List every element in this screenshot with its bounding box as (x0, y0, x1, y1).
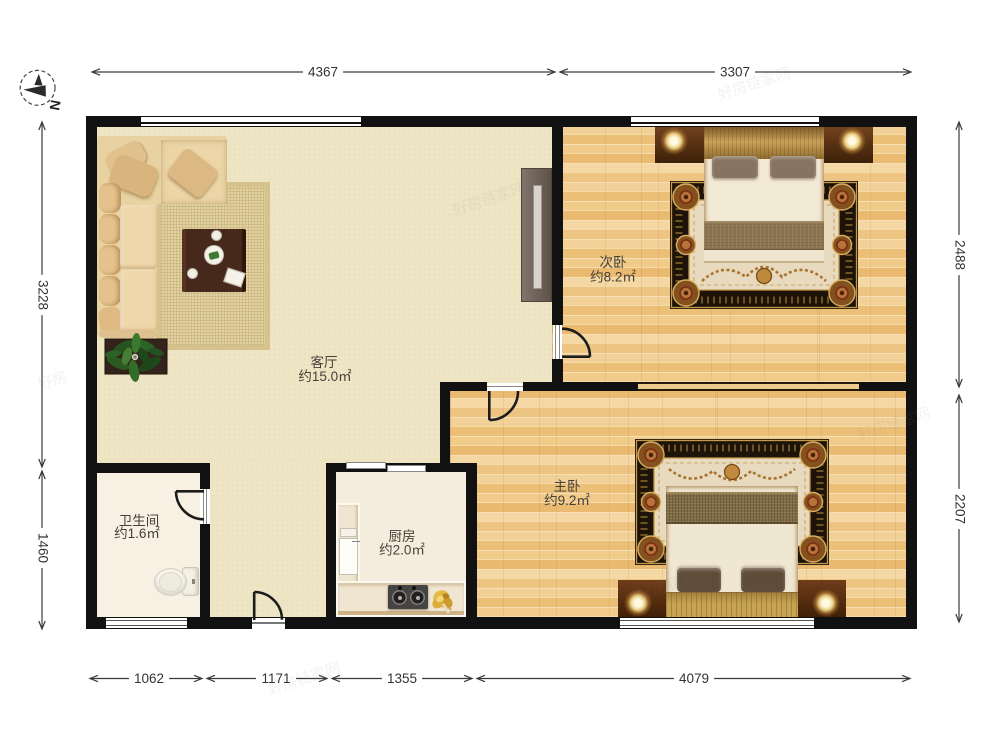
svg-text:约9.2㎡: 约9.2㎡ (544, 493, 590, 508)
svg-text:1460: 1460 (35, 533, 50, 563)
svg-text:次卧: 次卧 (600, 255, 627, 270)
svg-text:2207: 2207 (952, 494, 967, 524)
svg-text:约8.2㎡: 约8.2㎡ (590, 270, 636, 285)
svg-text:好房链家网: 好房链家网 (856, 404, 933, 443)
svg-text:客厅: 客厅 (311, 354, 338, 370)
svg-text:1062: 1062 (134, 671, 164, 686)
svg-text:3228: 3228 (35, 280, 50, 310)
svg-text:2488: 2488 (952, 240, 967, 270)
svg-text:好房链家网: 好房链家网 (451, 179, 528, 218)
svg-text:1355: 1355 (387, 671, 417, 686)
svg-text:4367: 4367 (308, 65, 338, 80)
svg-text:约1.6㎡: 约1.6㎡ (114, 526, 160, 541)
svg-text:约2.0㎡: 约2.0㎡ (379, 543, 425, 558)
svg-text:4079: 4079 (679, 671, 709, 686)
svg-text:好房: 好房 (36, 368, 70, 393)
svg-text:N: N (47, 99, 65, 112)
svg-text:约15.0㎡: 约15.0㎡ (298, 369, 352, 384)
svg-text:主卧: 主卧 (554, 479, 581, 494)
svg-text:好房链家网: 好房链家网 (636, 564, 713, 603)
svg-text:好房链家网: 好房链家网 (266, 659, 343, 698)
